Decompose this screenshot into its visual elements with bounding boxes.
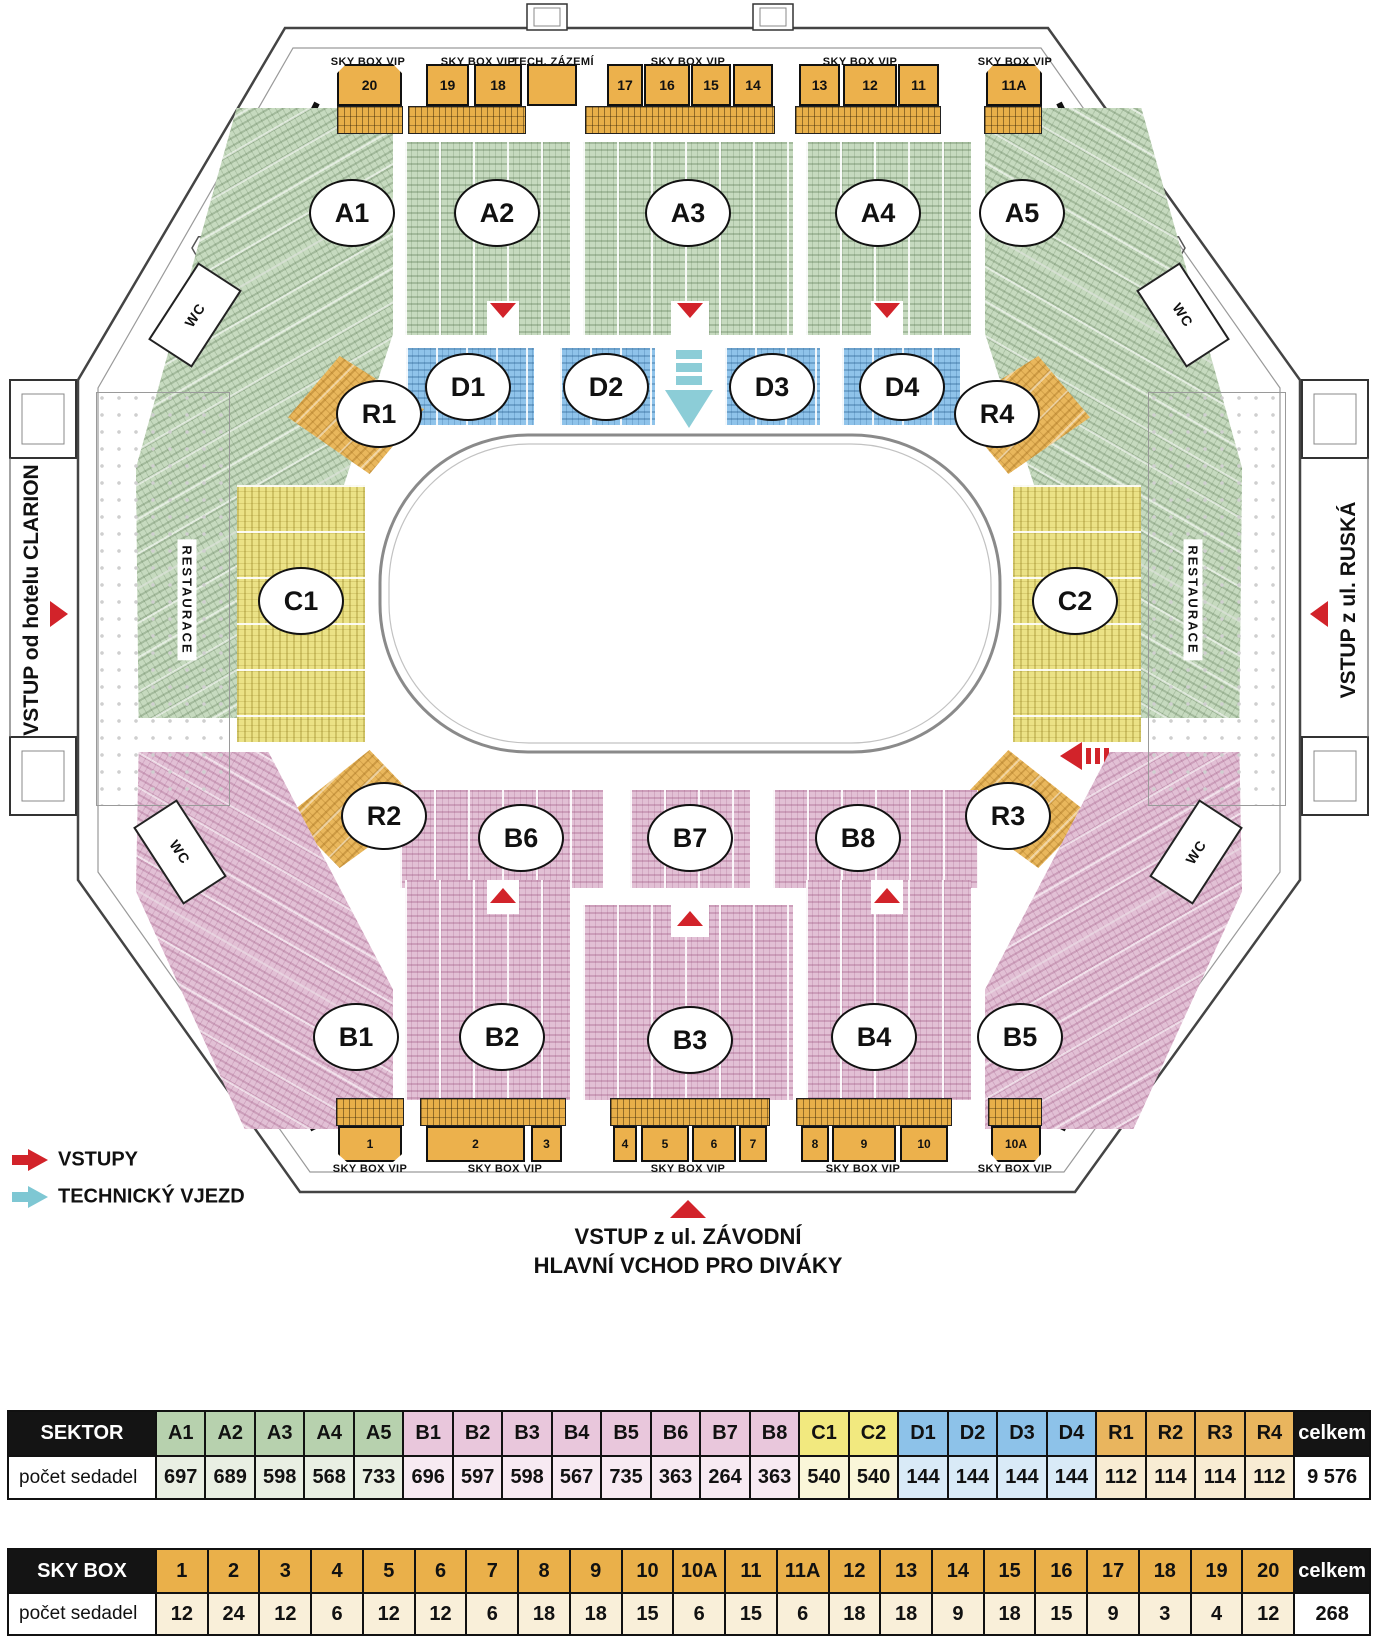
column-header-b3: B3 bbox=[501, 1412, 550, 1455]
entrance-right-label: VSTUP z ul. RUSKÁ bbox=[1337, 502, 1361, 699]
value-cell-a3: 598 bbox=[254, 1457, 303, 1498]
sector-badge-r1[interactable]: R1 bbox=[336, 380, 422, 448]
skybox-table: SKY BOX1234567891010A1111A12131415161718… bbox=[7, 1548, 1371, 1636]
sektor-table: SEKTORA1A2A3A4A5B1B2B3B4B5B6B7B8C1C2D1D2… bbox=[7, 1410, 1371, 1500]
wc-label: WC bbox=[181, 300, 208, 330]
table-header-row: SEKTORA1A2A3A4A5B1B2B3B4B5B6B7B8C1C2D1D2… bbox=[9, 1412, 1369, 1455]
table-value-row: počet sedadel122412612126181815615618189… bbox=[9, 1592, 1369, 1634]
skybox-20[interactable]: 20 bbox=[337, 64, 402, 106]
skybox-vip-label: SKY BOX VIP bbox=[978, 56, 1053, 68]
legend-tech-label: TECHNICKÝ VJEZD bbox=[58, 1186, 245, 1209]
value-cell-b2: 597 bbox=[452, 1457, 501, 1498]
value-cell-11a: 6 bbox=[776, 1594, 828, 1634]
value-cell-20: 12 bbox=[1241, 1594, 1293, 1634]
value-cell-9: 18 bbox=[569, 1594, 621, 1634]
skybox-1[interactable]: 1 bbox=[338, 1126, 402, 1162]
skybox-vip-label: SKY BOX VIP bbox=[823, 56, 898, 68]
column-header-6: 6 bbox=[414, 1550, 466, 1592]
tech-entry-arrow-icon bbox=[665, 350, 713, 428]
skybox-8[interactable]: 8 bbox=[801, 1126, 829, 1162]
value-cell-16: 15 bbox=[1034, 1594, 1086, 1634]
value-cell-19: 4 bbox=[1190, 1594, 1242, 1634]
skybox-vip-label: SKY BOX VIP bbox=[333, 1163, 408, 1175]
skybox-11[interactable]: 11 bbox=[898, 64, 939, 106]
skybox-5[interactable]: 5 bbox=[641, 1126, 689, 1162]
column-header-r4: R4 bbox=[1244, 1412, 1293, 1455]
value-cell-13: 18 bbox=[879, 1594, 931, 1634]
entrance-left-label: VSTUP od hotelu CLARION bbox=[20, 464, 44, 735]
value-cell-15: 18 bbox=[983, 1594, 1035, 1634]
column-header-15: 15 bbox=[983, 1550, 1035, 1592]
column-header-3: 3 bbox=[258, 1550, 310, 1592]
column-header-8: 8 bbox=[517, 1550, 569, 1592]
value-cell-11: 15 bbox=[724, 1594, 776, 1634]
table-header-row: SKY BOX1234567891010A1111A12131415161718… bbox=[9, 1550, 1369, 1592]
vip-seating-strip bbox=[795, 106, 941, 134]
sector-badge-a1[interactable]: A1 bbox=[309, 179, 395, 247]
value-cell-4: 6 bbox=[310, 1594, 362, 1634]
vip-seating-strip bbox=[610, 1098, 770, 1126]
column-header-a4: A4 bbox=[303, 1412, 352, 1455]
skybox-6[interactable]: 6 bbox=[692, 1126, 736, 1162]
vip-seating-strip bbox=[585, 106, 775, 134]
value-cell-c1: 540 bbox=[798, 1457, 847, 1498]
column-header-b7: B7 bbox=[699, 1412, 748, 1455]
value-cell-12: 18 bbox=[828, 1594, 880, 1634]
value-cell-18: 3 bbox=[1138, 1594, 1190, 1634]
sector-badge-d2[interactable]: D2 bbox=[563, 353, 649, 421]
skybox-15[interactable]: 15 bbox=[691, 64, 731, 106]
column-header-11: 11 bbox=[724, 1550, 776, 1592]
skybox-vip-label: SKY BOX VIP bbox=[826, 1163, 901, 1175]
restaurant-zone-right bbox=[1148, 392, 1286, 806]
sector-badge-b8[interactable]: B8 bbox=[815, 804, 901, 872]
column-header-17: 17 bbox=[1086, 1550, 1138, 1592]
vip-seating-strip bbox=[988, 1098, 1042, 1126]
value-cell-c2: 540 bbox=[848, 1457, 897, 1498]
skybox-10[interactable]: 10 bbox=[900, 1126, 948, 1162]
entry-triangle-icon bbox=[874, 303, 900, 318]
column-header-13: 13 bbox=[879, 1550, 931, 1592]
skybox-3[interactable]: 3 bbox=[531, 1126, 562, 1162]
skybox-vip-label: SKY BOX VIP bbox=[468, 1163, 543, 1175]
value-cell-b8: 363 bbox=[749, 1457, 798, 1498]
sector-badge-r3[interactable]: R3 bbox=[965, 782, 1051, 850]
total-value: 9 576 bbox=[1293, 1457, 1369, 1498]
column-header-b2: B2 bbox=[452, 1412, 501, 1455]
value-cell-b4: 567 bbox=[551, 1457, 600, 1498]
column-header-4: 4 bbox=[310, 1550, 362, 1592]
column-header-b5: B5 bbox=[600, 1412, 649, 1455]
table-value-row: počet sedadel697689598568733696597598567… bbox=[9, 1455, 1369, 1498]
column-header-r1: R1 bbox=[1095, 1412, 1144, 1455]
entrance-bottom-line1: VSTUP z ul. ZÁVODNÍ bbox=[575, 1224, 802, 1250]
sector-badge-b2[interactable]: B2 bbox=[459, 1003, 545, 1071]
value-cell-10a: 6 bbox=[672, 1594, 724, 1634]
skybox-11A[interactable]: 11A bbox=[986, 64, 1042, 106]
legend-entries-label: VSTUPY bbox=[58, 1149, 138, 1172]
column-header-10: 10 bbox=[621, 1550, 673, 1592]
value-cell-2: 24 bbox=[207, 1594, 259, 1634]
value-cell-r1: 112 bbox=[1095, 1457, 1144, 1498]
column-header-b4: B4 bbox=[551, 1412, 600, 1455]
column-header-1: 1 bbox=[155, 1550, 207, 1592]
skybox-4[interactable]: 4 bbox=[613, 1126, 637, 1162]
value-cell-b1: 696 bbox=[402, 1457, 451, 1498]
value-row-label: počet sedadel bbox=[9, 1594, 155, 1634]
value-cell-r3: 114 bbox=[1194, 1457, 1243, 1498]
sector-badge-b6[interactable]: B6 bbox=[478, 804, 564, 872]
entry-triangle-icon bbox=[874, 888, 900, 903]
sector-badge-b4[interactable]: B4 bbox=[831, 1003, 917, 1071]
sector-badge-a4[interactable]: A4 bbox=[835, 179, 921, 247]
sector-badge-b1[interactable]: B1 bbox=[313, 1003, 399, 1071]
skybox-7[interactable]: 7 bbox=[739, 1126, 767, 1162]
skybox-18[interactable]: 18 bbox=[474, 64, 522, 106]
column-header-d4: D4 bbox=[1046, 1412, 1095, 1455]
column-header-9: 9 bbox=[569, 1550, 621, 1592]
sector-badge-b5[interactable]: B5 bbox=[977, 1003, 1063, 1071]
column-header-12: 12 bbox=[828, 1550, 880, 1592]
sector-badge-r4[interactable]: R4 bbox=[954, 380, 1040, 448]
vip-seating-strip bbox=[420, 1098, 566, 1126]
table-title: SEKTOR bbox=[9, 1412, 155, 1455]
column-header-a1: A1 bbox=[155, 1412, 204, 1455]
skybox-tech-zazemi[interactable] bbox=[527, 64, 577, 106]
technical-entry-arrow-icon bbox=[12, 1186, 48, 1208]
value-cell-a1: 697 bbox=[155, 1457, 204, 1498]
vip-seating-strip bbox=[337, 106, 403, 134]
skybox-10A[interactable]: 10A bbox=[991, 1126, 1041, 1162]
skybox-14[interactable]: 14 bbox=[733, 64, 773, 106]
column-header-b8: B8 bbox=[749, 1412, 798, 1455]
sector-badge-d4[interactable]: D4 bbox=[859, 353, 945, 421]
vip-seating-strip bbox=[408, 106, 526, 134]
skybox-2[interactable]: 2 bbox=[426, 1126, 525, 1162]
value-cell-a4: 568 bbox=[303, 1457, 352, 1498]
value-cell-r4: 112 bbox=[1244, 1457, 1293, 1498]
value-cell-d3: 144 bbox=[996, 1457, 1045, 1498]
vip-seating-strip bbox=[984, 106, 1042, 134]
entrance-bottom-line2: HLAVNÍ VCHOD PRO DIVÁKY bbox=[534, 1253, 843, 1279]
value-cell-7: 6 bbox=[465, 1594, 517, 1634]
column-header-c2: C2 bbox=[848, 1412, 897, 1455]
skybox-vip-label: SKY BOX VIP bbox=[651, 56, 726, 68]
entry-triangle-icon bbox=[490, 303, 516, 318]
total-header: celkem bbox=[1293, 1412, 1369, 1455]
vip-seating-strip bbox=[796, 1098, 952, 1126]
skybox-17[interactable]: 17 bbox=[607, 64, 643, 106]
column-header-a2: A2 bbox=[204, 1412, 253, 1455]
skybox-vip-label: SKY BOX VIP bbox=[978, 1163, 1053, 1175]
column-header-b1: B1 bbox=[402, 1412, 451, 1455]
table-title: SKY BOX bbox=[9, 1550, 155, 1592]
entry-triangle-icon bbox=[677, 303, 703, 318]
column-header-10a: 10A bbox=[672, 1550, 724, 1592]
column-header-19: 19 bbox=[1190, 1550, 1242, 1592]
column-header-b6: B6 bbox=[650, 1412, 699, 1455]
column-header-18: 18 bbox=[1138, 1550, 1190, 1592]
column-header-16: 16 bbox=[1034, 1550, 1086, 1592]
value-cell-6: 12 bbox=[414, 1594, 466, 1634]
tech-zazemi-label: TECH. ZÁZEMÍ bbox=[512, 56, 594, 68]
value-cell-5: 12 bbox=[362, 1594, 414, 1634]
column-header-r2: R2 bbox=[1145, 1412, 1194, 1455]
skybox-vip-label: SKY BOX VIP bbox=[331, 56, 406, 68]
skybox-16[interactable]: 16 bbox=[644, 64, 690, 106]
value-cell-17: 9 bbox=[1086, 1594, 1138, 1634]
restaurace-label-left: RESTAURACE bbox=[178, 539, 197, 660]
skybox-vip-label: SKY BOX VIP bbox=[441, 56, 516, 68]
column-header-5: 5 bbox=[362, 1550, 414, 1592]
arena-seating-plan: RESTAURACE RESTAURACE WC WC WC WC VSTUP … bbox=[0, 0, 1378, 1638]
sector-badge-d1[interactable]: D1 bbox=[425, 353, 511, 421]
skybox-19[interactable]: 19 bbox=[426, 64, 469, 106]
sector-badge-b3[interactable]: B3 bbox=[647, 1006, 733, 1074]
vip-seating-strip bbox=[336, 1098, 404, 1126]
sector-badge-c1[interactable]: C1 bbox=[258, 567, 344, 635]
value-cell-b3: 598 bbox=[501, 1457, 550, 1498]
wc-label: WC bbox=[1182, 837, 1209, 867]
sector-badge-a5[interactable]: A5 bbox=[979, 179, 1065, 247]
entries-arrow-icon bbox=[12, 1149, 48, 1171]
value-cell-1: 12 bbox=[155, 1594, 207, 1634]
skybox-13[interactable]: 13 bbox=[799, 64, 840, 106]
skybox-vip-label: SKY BOX VIP bbox=[651, 1163, 726, 1175]
value-cell-b6: 363 bbox=[650, 1457, 699, 1498]
column-header-d1: D1 bbox=[897, 1412, 946, 1455]
value-cell-b7: 264 bbox=[699, 1457, 748, 1498]
column-header-c1: C1 bbox=[798, 1412, 847, 1455]
ice-rink bbox=[380, 435, 1000, 752]
skybox-9[interactable]: 9 bbox=[832, 1126, 896, 1162]
value-cell-10: 15 bbox=[621, 1594, 673, 1634]
column-header-r3: R3 bbox=[1194, 1412, 1243, 1455]
wc-label: WC bbox=[166, 837, 193, 867]
column-header-a3: A3 bbox=[254, 1412, 303, 1455]
total-value: 268 bbox=[1293, 1594, 1369, 1634]
value-cell-d2: 144 bbox=[947, 1457, 996, 1498]
column-header-14: 14 bbox=[931, 1550, 983, 1592]
sector-badge-c2[interactable]: C2 bbox=[1032, 567, 1118, 635]
sector-badge-a3[interactable]: A3 bbox=[645, 179, 731, 247]
column-header-d2: D2 bbox=[947, 1412, 996, 1455]
entry-triangle-icon bbox=[490, 888, 516, 903]
restaurace-label-right: RESTAURACE bbox=[1184, 539, 1203, 660]
top-elevator-shafts bbox=[527, 4, 793, 30]
sector-badge-r2[interactable]: R2 bbox=[341, 782, 427, 850]
value-cell-3: 12 bbox=[258, 1594, 310, 1634]
value-cell-14: 9 bbox=[931, 1594, 983, 1634]
value-cell-8: 18 bbox=[517, 1594, 569, 1634]
value-cell-r2: 114 bbox=[1145, 1457, 1194, 1498]
column-header-7: 7 bbox=[465, 1550, 517, 1592]
column-header-20: 20 bbox=[1241, 1550, 1293, 1592]
value-cell-b5: 735 bbox=[600, 1457, 649, 1498]
wc-label: WC bbox=[1169, 300, 1196, 330]
value-cell-d4: 144 bbox=[1046, 1457, 1095, 1498]
restaurant-zone-left bbox=[96, 392, 230, 806]
value-cell-a5: 733 bbox=[353, 1457, 402, 1498]
sector-badge-b7[interactable]: B7 bbox=[647, 804, 733, 872]
column-header-11a: 11A bbox=[776, 1550, 828, 1592]
column-header-d3: D3 bbox=[996, 1412, 1045, 1455]
sector-badge-d3[interactable]: D3 bbox=[729, 353, 815, 421]
value-row-label: počet sedadel bbox=[9, 1457, 155, 1498]
column-header-2: 2 bbox=[207, 1550, 259, 1592]
entry-triangle-icon bbox=[677, 911, 703, 926]
total-header: celkem bbox=[1293, 1550, 1369, 1592]
value-cell-d1: 144 bbox=[897, 1457, 946, 1498]
column-header-a5: A5 bbox=[353, 1412, 402, 1455]
value-cell-a2: 689 bbox=[204, 1457, 253, 1498]
skybox-12[interactable]: 12 bbox=[843, 64, 897, 106]
sector-badge-a2[interactable]: A2 bbox=[454, 179, 540, 247]
